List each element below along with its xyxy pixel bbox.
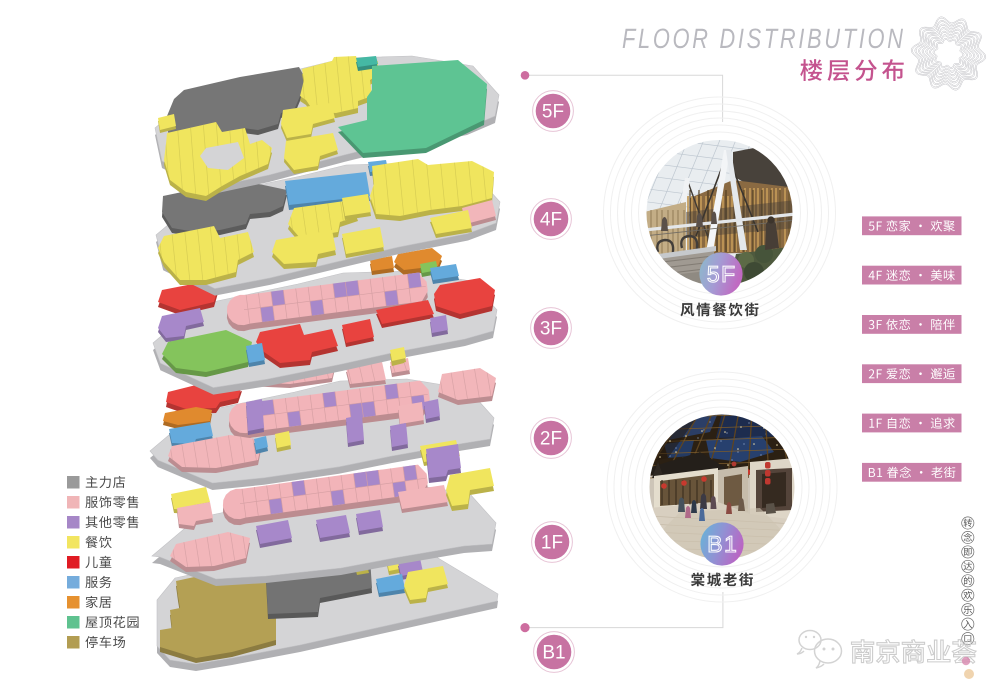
svg-text:3F: 3F	[540, 319, 562, 340]
svg-text:5F: 5F	[542, 102, 564, 123]
svg-text:1F: 1F	[541, 533, 563, 554]
svg-text:2F: 2F	[540, 429, 562, 450]
svg-text:4F: 4F	[540, 210, 562, 231]
svg-text:B1: B1	[542, 643, 565, 664]
